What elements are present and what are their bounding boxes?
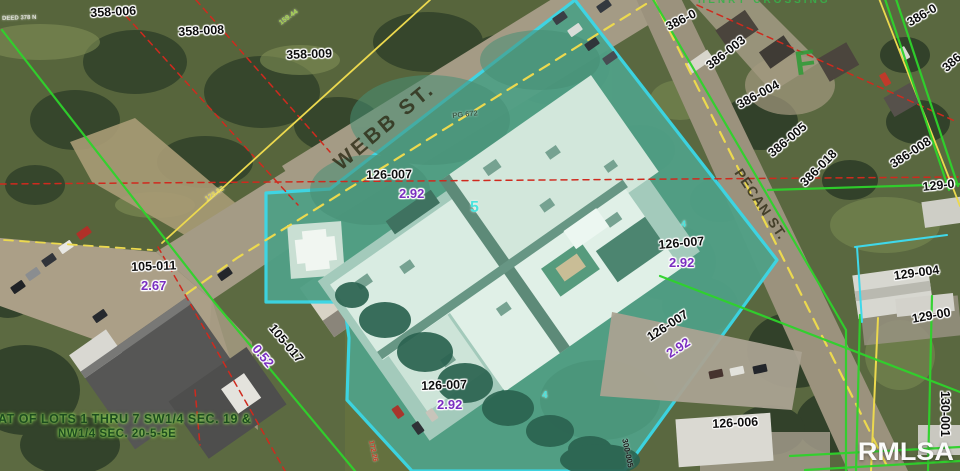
aerial-map-svg <box>0 0 960 471</box>
gis-map-canvas[interactable]: AT OF LOTS 1 THRU 7 SW1/4 SEC. 19 & NW1/… <box>0 0 960 471</box>
